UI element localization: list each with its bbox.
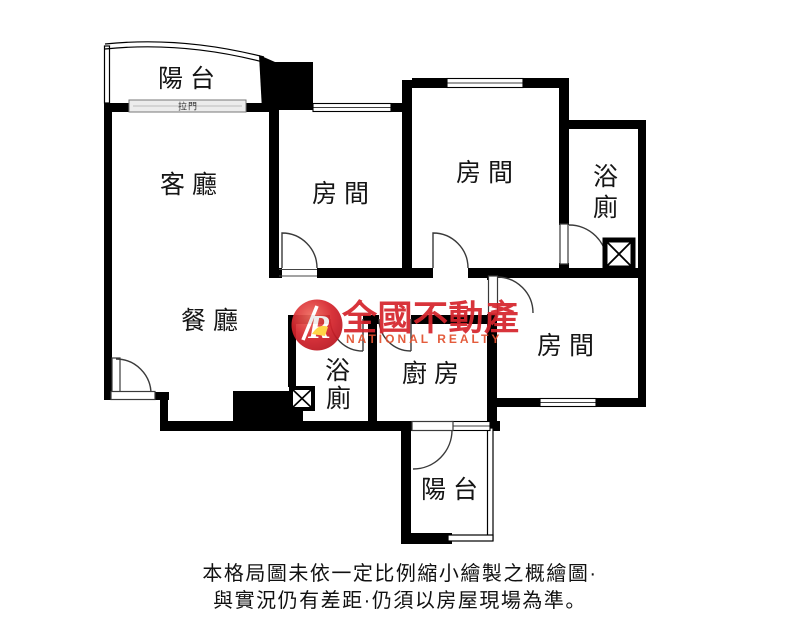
door-arc: [282, 233, 317, 268]
balcony-thin-wall: [448, 535, 493, 541]
balcony-thin-wall: [488, 428, 494, 540]
entry-threshold: [111, 392, 155, 400]
door-leaf: [412, 422, 453, 431]
disclaimer-line-1: 本格局圖未依一定比例縮小繪製之概繪圖·: [202, 562, 597, 585]
room-label-balcony-bottom: 陽台: [421, 476, 485, 504]
room-label-bath-top: 廁: [593, 194, 618, 222]
room-label-bedroom-top: 房間: [456, 159, 520, 187]
wall-segment: [559, 78, 569, 225]
room-label-balcony-top: 陽台: [158, 65, 222, 93]
room-label-bath-center: 廁: [326, 385, 351, 413]
room-label-bath-top: 浴: [593, 163, 618, 191]
wall-segment: [317, 268, 433, 278]
disclaimer-line-2: 與實況仍有差距·仍須以房屋現場為準。: [213, 589, 587, 612]
wall-segment: [104, 103, 131, 112]
door-leaf: [560, 224, 568, 264]
wall-segment: [269, 110, 279, 270]
wall-segment: [596, 398, 646, 407]
balcony-curved-wall: [105, 42, 264, 57]
wall-segment: [401, 533, 452, 544]
pipe-shaft-icon: [291, 388, 313, 409]
wall-segment: [401, 431, 411, 544]
wall-segment: [402, 80, 412, 270]
door-arc: [116, 359, 151, 394]
brand-name-en: NATIONAL REALTY: [346, 332, 502, 346]
wall-segment: [160, 421, 413, 431]
door-leaf: [112, 358, 120, 394]
balcony-thin-wall: [105, 46, 110, 103]
door-arc: [569, 225, 607, 263]
wall-segment: [569, 120, 646, 129]
room-label-living: 客廳: [160, 171, 224, 199]
wall-segment: [497, 398, 540, 407]
room-labels: 陽台 客廳 房間 房間 浴 廁 餐廳 浴 廁 廚房 房間 陽台: [158, 65, 618, 504]
door-arc: [413, 430, 452, 469]
room-label-bedroom-right: 房間: [537, 332, 601, 360]
doors: [111, 224, 607, 469]
disclaimer: 本格局圖未依一定比例縮小繪製之概繪圖· 與實況仍有差距·仍須以房屋現場為準。: [202, 562, 597, 612]
column: [233, 391, 291, 423]
door-arc: [433, 233, 468, 268]
wall-segment: [104, 103, 112, 400]
column: [272, 62, 313, 110]
room-label-bedroom-left: 房間: [312, 180, 376, 208]
sliding-door: 拉門: [129, 100, 246, 112]
wall-segment: [160, 392, 168, 431]
watermark: R 全國不動產 NATIONAL REALTY: [292, 298, 520, 351]
floor-plan-page: 拉門 陽台 客廳 房間: [0, 0, 800, 638]
pipe-shaft-icon: [605, 240, 633, 268]
balcony-curved-wall: [105, 47, 263, 62]
room-label-bath-center: 浴: [325, 357, 350, 385]
wall-segment: [412, 78, 447, 88]
sliding-door-label: 拉門: [178, 101, 198, 112]
wall-segment: [638, 120, 646, 407]
room-label-kitchen: 廚房: [402, 360, 466, 388]
room-label-dining: 餐廳: [181, 307, 245, 335]
floor-plan-svg: 拉門 陽台 客廳 房間: [0, 0, 800, 638]
